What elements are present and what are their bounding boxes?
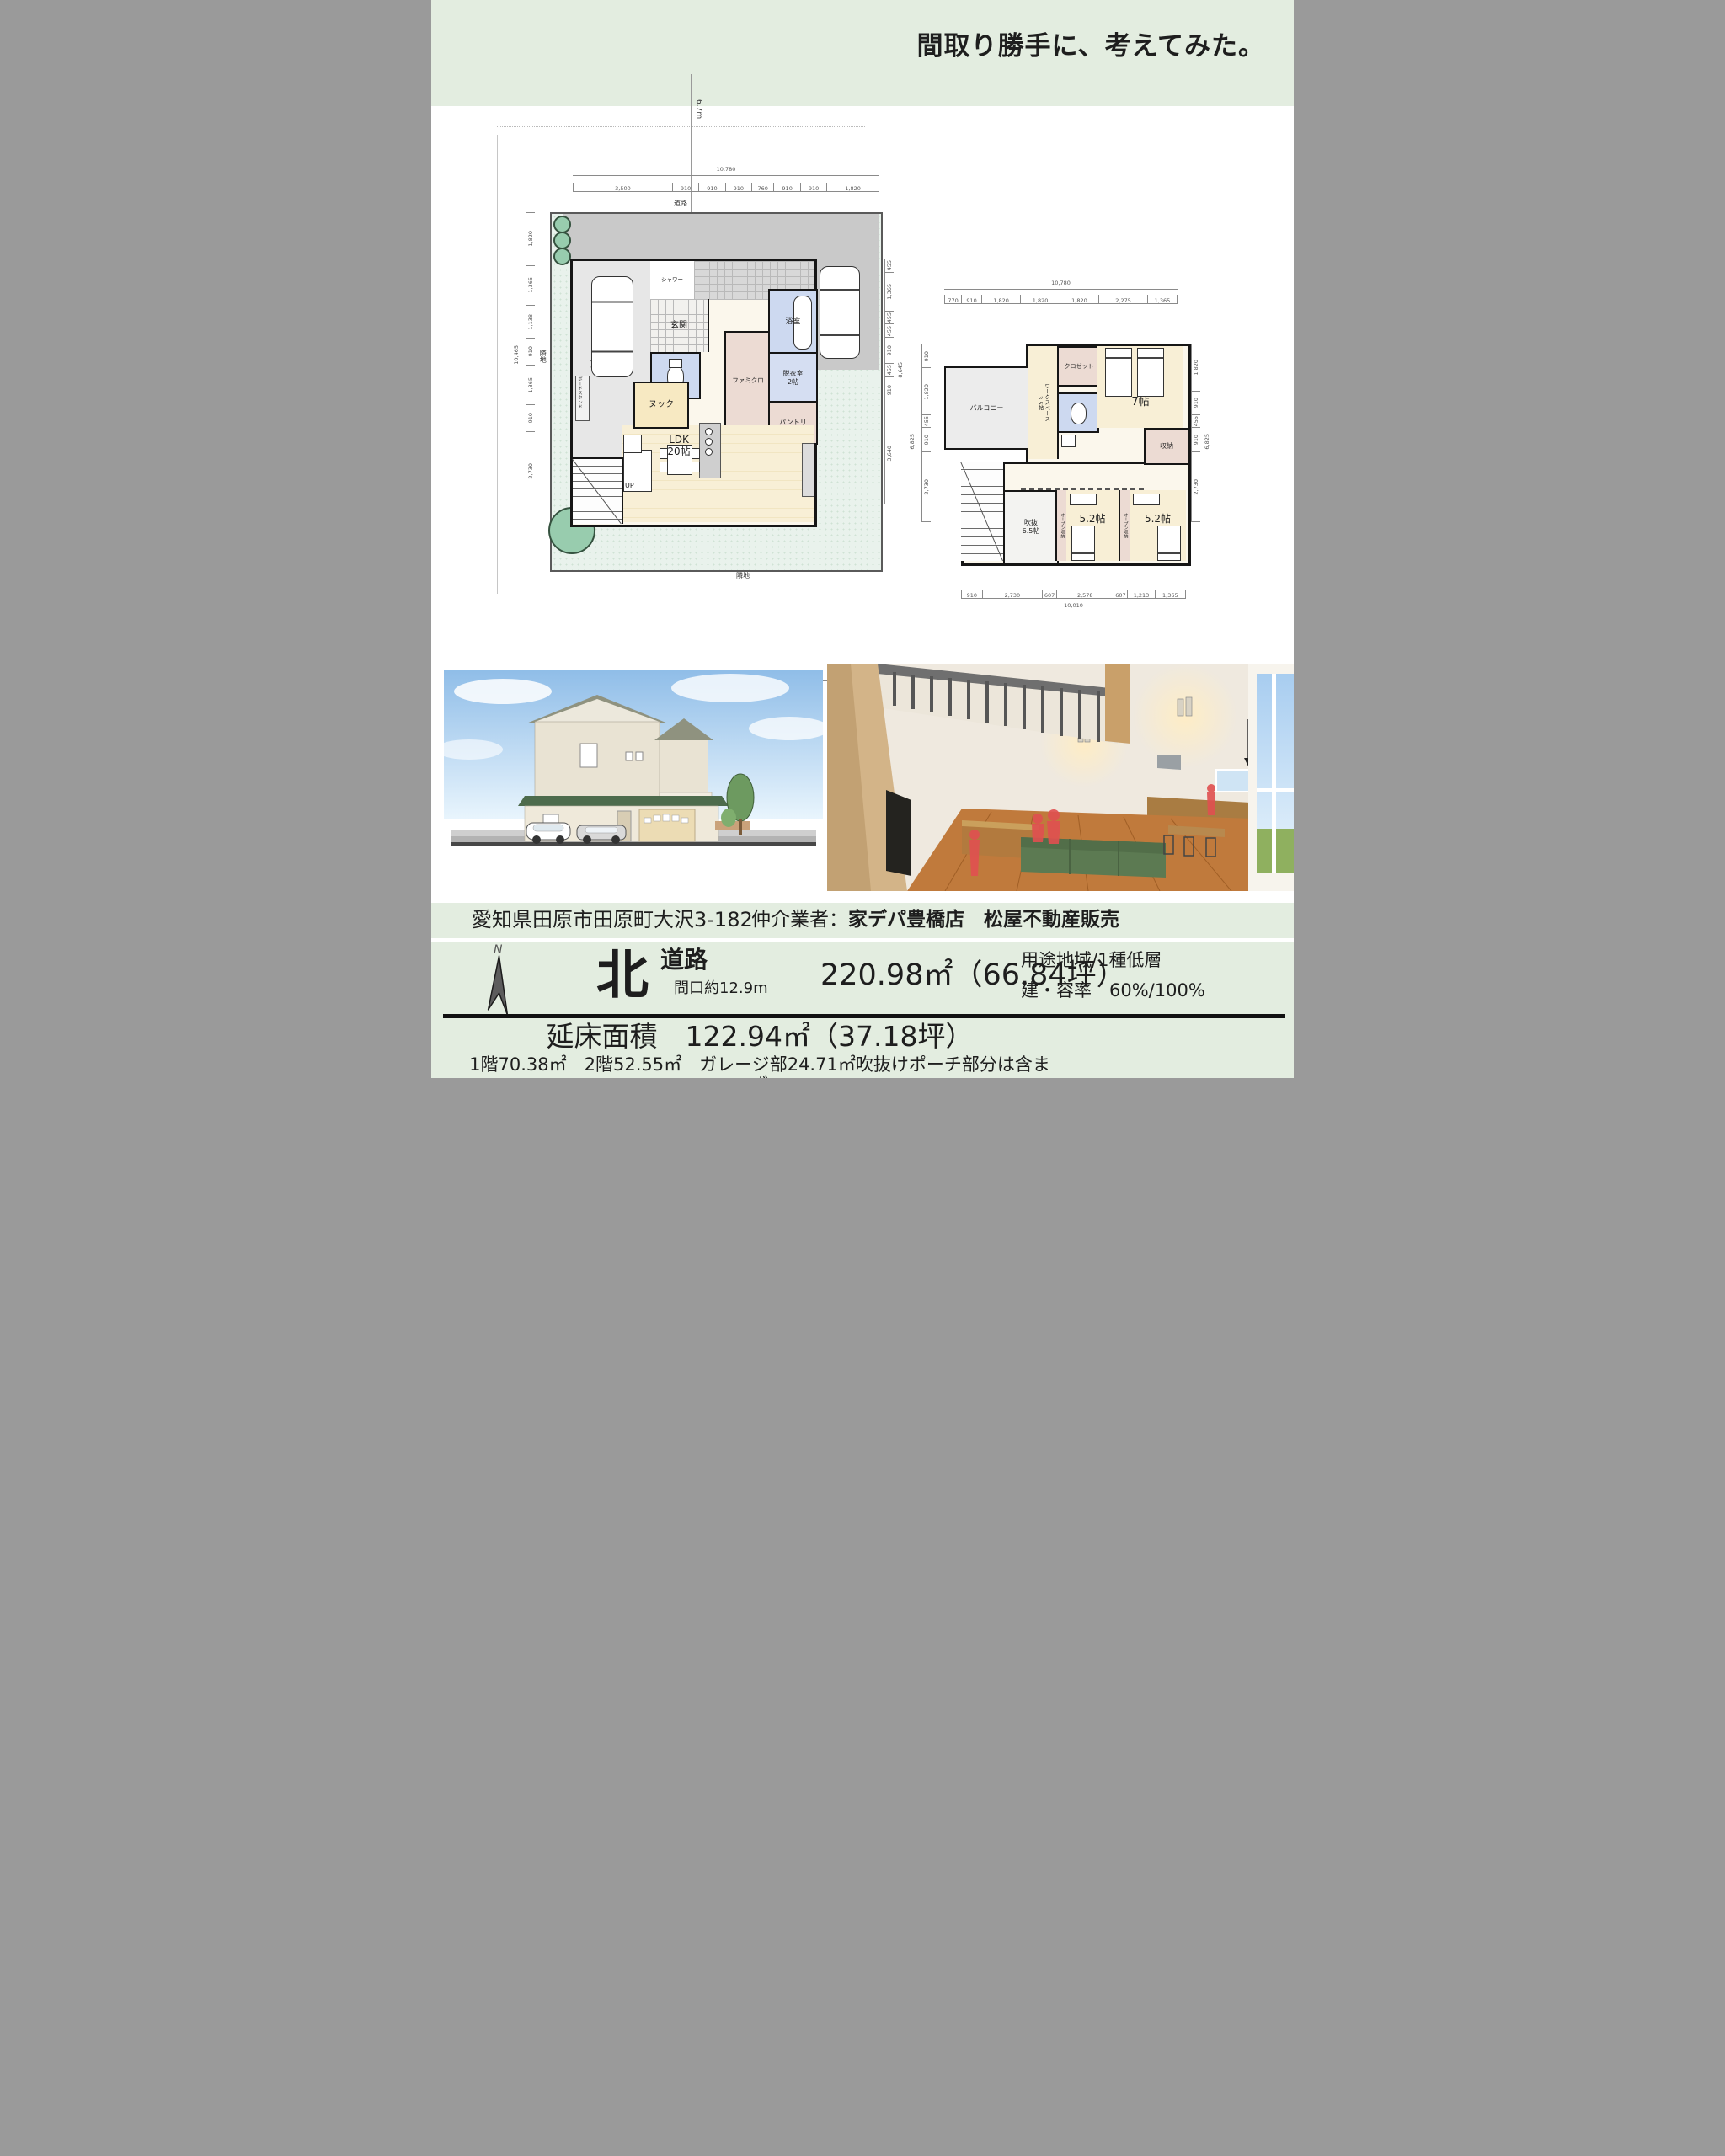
plan2-dim-left-total: 6,825 <box>910 434 916 450</box>
stairs-up <box>573 457 623 524</box>
garage-door-window <box>672 815 679 821</box>
plan2-dim-left: 9101,8204559102,730 <box>921 344 931 522</box>
counter-bench <box>802 443 814 497</box>
room-shower: シャワー <box>650 261 696 301</box>
plan1-adjacent-left-label: 隣地 <box>539 350 547 363</box>
roof-1f <box>518 796 729 806</box>
window <box>580 744 597 767</box>
plan1-dim-top-total: 10,780 <box>573 167 879 173</box>
plan1-driveway-top <box>563 214 879 260</box>
plan2-dim-top-line <box>944 289 1178 290</box>
zoning: 用途地域/1種低層 <box>1021 950 1162 970</box>
plan2-dim-bottom-total: 10,010 <box>961 603 1186 609</box>
room-shower-label: シャワー <box>661 277 683 284</box>
exterior-render <box>444 670 823 882</box>
coverage-ratio: 建・容率 60%/100% <box>1021 980 1205 1001</box>
cloud <box>671 674 789 702</box>
loft-wood-post <box>1105 664 1130 744</box>
open-storage-1-label: オープン収納 <box>1060 513 1065 538</box>
stove-burner-icon <box>705 448 713 456</box>
floor-area-value: 122.94㎡（37.18坪） <box>686 1020 974 1053</box>
range-hood <box>1157 755 1181 770</box>
floor-area-label: 延床面積 <box>547 1020 658 1053</box>
room-nook: ヌック <box>633 382 689 429</box>
plan2-dim-top-total: 10,780 <box>944 280 1178 286</box>
plan1-dim-top-line <box>573 175 879 176</box>
info-band: N 北 道路 間口約12.9m 220.98㎡（66.84坪） 用途地域/1種低… <box>431 942 1294 1078</box>
toilet-icon <box>1071 403 1087 424</box>
plan1-house: ガレージ ボードスタンド シャワー 玄関 ファミクロ 浴室 脱衣室 2帖 パント… <box>570 259 817 527</box>
road-edge <box>451 842 816 846</box>
desk-icon <box>1133 494 1160 505</box>
plan1-dim-right: 4551,3654554559104559103,640 <box>884 259 894 504</box>
window-mullion <box>1257 788 1294 792</box>
room-famiclo-label: ファミクロ <box>732 376 764 384</box>
room-entrance-label: 玄関 <box>670 321 687 331</box>
plan2-dim-right-total: 6,825 <box>1204 434 1210 450</box>
bed-icon <box>1071 526 1095 561</box>
bed-icon <box>1105 348 1132 397</box>
cloud <box>454 679 552 704</box>
room-workspace: ワークスペース 3.5帖 <box>1028 346 1059 459</box>
compass-icon <box>478 953 517 1017</box>
stairs-up-label: UP <box>625 482 634 489</box>
plan2-dim-top: 7709101,8201,8201,8202,2751,365 <box>944 295 1178 304</box>
room-dressing: 脱衣室 2帖 <box>768 352 818 404</box>
open-storage-2-label: オープン収納 <box>1124 513 1129 538</box>
hedge-tree-icon <box>553 248 571 265</box>
toilet-tank-icon <box>669 359 682 368</box>
page-title: 間取り勝手に、考えてみた。 <box>916 32 1265 62</box>
window <box>636 752 643 760</box>
interior-render <box>827 664 1294 891</box>
plan1-dim-top: 3,5009109109107609109101,820 <box>573 183 879 192</box>
floor-area-breakdown: 1階70.38㎡ 2階52.55㎡ ガレージ部24.71㎡吹抜けポーチ部分は含ま… <box>465 1054 1055 1078</box>
room-toilet2 <box>1057 392 1099 433</box>
tree-trunk <box>739 819 742 835</box>
room-entrance: 玄関 <box>650 299 709 352</box>
window <box>626 752 633 760</box>
plan1-dim-left-total: 10,465 <box>514 345 520 365</box>
room-workspace-label: ワークスペース 3.5帖 <box>1036 383 1049 422</box>
room-balcony-label: バルコニー <box>970 404 1004 413</box>
room-void-label: 吹抜 6.5帖 <box>1023 519 1040 535</box>
divider-rule <box>443 1014 1285 1018</box>
room-dressing-label: 脱衣室 <box>783 370 804 378</box>
bush <box>721 808 736 827</box>
stove-burner-icon <box>705 438 713 446</box>
desk-icon <box>1070 494 1097 505</box>
road-boundary-line <box>497 135 498 594</box>
stairs-diagonal <box>572 459 622 524</box>
road-width-label: 6.7m <box>694 99 702 119</box>
direction-main: 北 <box>596 945 649 1005</box>
room-storage-label: 収納 <box>1160 442 1173 451</box>
sofa-icon <box>623 435 642 453</box>
stove-burner-icon <box>705 428 713 435</box>
room-nook-label: ヌック <box>649 400 674 410</box>
plan1-dim-right-total: 8,645 <box>898 362 904 378</box>
room-bath-label: 浴室 <box>785 318 800 327</box>
room-closet: クロゼット <box>1057 346 1101 387</box>
car-icon <box>820 266 860 359</box>
hedge-tree-icon <box>553 216 571 233</box>
header-band: 間取り勝手に、考えてみた。 <box>431 0 1294 106</box>
direction-road: 道路 <box>660 947 708 974</box>
garage-door-window <box>654 815 660 821</box>
stairs-down <box>961 462 1005 561</box>
window-mullion <box>1272 674 1276 873</box>
address-band: 愛知県田原市田原町大沢3-182 仲介業者：家デパ豊橋店 松屋不動産販売 <box>431 903 1294 938</box>
ldk-text: LDK <box>669 434 689 446</box>
room-famiclo: ファミクロ <box>724 331 772 429</box>
room-bed52-b-label: 5.2帖 <box>1145 513 1171 525</box>
garage-door-window <box>644 818 651 823</box>
road-label: 道路 <box>674 200 687 207</box>
plan1-adjacent-bottom-label: 隣地 <box>736 572 750 579</box>
floor-area-line: 延床面積 122.94㎡（37.18坪） <box>465 1021 1055 1053</box>
property-address: 愛知県田原市田原町大沢3-182 <box>472 909 753 932</box>
chair-icon <box>692 462 700 472</box>
flyer-page: 間取り勝手に、考えてみた。 6.7m 道路 10,780 3,500910910… <box>431 0 1294 1078</box>
room-bed7-label: 7帖 <box>1131 396 1149 409</box>
board-stand: ボードスタンド <box>575 376 590 421</box>
room-void: 吹抜 6.5帖 <box>1003 490 1059 564</box>
garage-door <box>639 809 695 841</box>
wall-sconce <box>1186 697 1192 716</box>
plan2-dim-bottom: 9102,7306072,5786071,2131,365 <box>961 590 1186 599</box>
ldk-size-text: 20帖 <box>667 446 690 457</box>
wall-sconce <box>1178 699 1183 716</box>
room-bath: 浴室 <box>768 289 818 355</box>
car-icon <box>591 276 633 377</box>
garage-door-window <box>681 818 688 823</box>
garage-door-window <box>663 814 670 821</box>
room-ldk-label: LDK 20帖 <box>653 435 705 458</box>
bed-icon <box>1157 526 1181 561</box>
room-balcony: バルコニー <box>944 366 1029 450</box>
tv-panel <box>886 790 911 876</box>
board-stand-label: ボードスタンド <box>576 376 583 409</box>
plan2-house: バルコニー ワークスペース 3.5帖 クロゼット 7帖 収納 DN <box>937 337 1198 568</box>
hedge-tree-icon <box>553 232 571 249</box>
room-bed52-a-label: 5.2帖 <box>1079 513 1105 525</box>
stairs-diagonal <box>960 462 1003 561</box>
washbasin-icon <box>1061 435 1076 447</box>
broker-label: 仲介業者： <box>751 909 848 931</box>
road-edge-dotted-line <box>497 126 865 127</box>
plan1-dim-left: 1,8201,3651,1389101,3659102,730 <box>526 212 535 510</box>
chair-icon <box>660 462 668 472</box>
broker-names: 家デパ豊橋店 松屋不動産販売 <box>848 909 1119 931</box>
wall-light-glow <box>1133 664 1237 768</box>
frontage: 間口約12.9m <box>674 980 768 998</box>
room-dressing-size: 2帖 <box>788 378 798 387</box>
bed-icon <box>1137 348 1164 397</box>
room-closet-label: クロゼット <box>1065 363 1094 370</box>
broker-line: 仲介業者：家デパ豊橋店 松屋不動産販売 <box>751 909 1119 931</box>
room-storage: 収納 <box>1144 428 1189 465</box>
